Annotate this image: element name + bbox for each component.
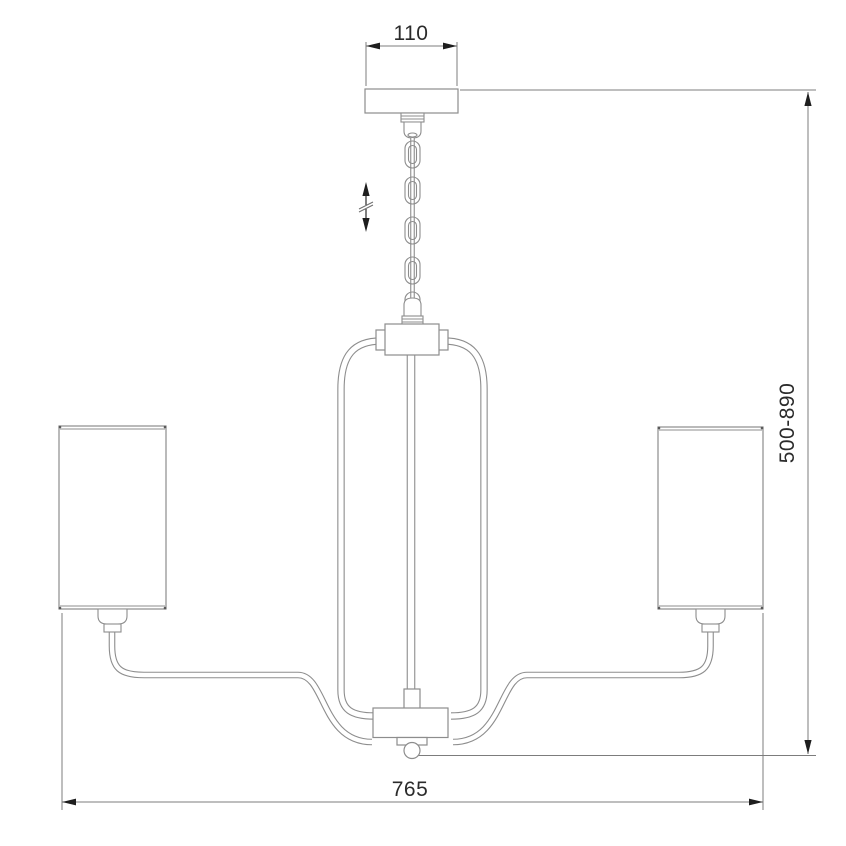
right-arm xyxy=(453,627,711,742)
canopy-width-label: 110 xyxy=(394,22,429,45)
dim-arrow-right-icon xyxy=(749,799,763,806)
dim-arrow-left-icon xyxy=(62,799,76,806)
loop-right-outline xyxy=(444,341,484,716)
chandelier-technical-drawing: 110 500-890 765 xyxy=(0,0,846,846)
right-socket xyxy=(696,609,725,632)
hub-body xyxy=(385,324,439,355)
dim-arrow-right-icon xyxy=(443,43,457,50)
right-socket-bell xyxy=(696,609,725,624)
overall-width-label: 765 xyxy=(392,778,429,801)
ceiling-canopy xyxy=(365,89,458,113)
chain-top-cup xyxy=(404,122,421,138)
adjust-arrow-down-head xyxy=(362,218,369,232)
canopy-plate xyxy=(365,89,458,113)
left-shade xyxy=(59,426,167,610)
dim-arrow-down-icon xyxy=(804,740,811,754)
chain-top-cap xyxy=(401,113,424,122)
loop-right-core xyxy=(444,341,484,716)
left-socket-neck xyxy=(104,624,121,632)
left-socket xyxy=(98,609,127,632)
dim-arrow-up-icon xyxy=(804,92,811,106)
top-hub xyxy=(376,324,448,355)
height-range-label: 500-890 xyxy=(776,383,799,464)
adjust-arrow-up-head xyxy=(362,182,369,196)
loop-left-outline xyxy=(341,341,381,716)
dim-canopy-width: 110 xyxy=(366,22,457,86)
loop-left-core xyxy=(341,341,381,716)
dim-arrow-left-icon xyxy=(366,43,380,50)
finial-ball xyxy=(404,743,420,759)
diagram-canvas: 110 500-890 765 xyxy=(0,0,846,846)
chain-bottom-cup xyxy=(404,298,421,316)
right-shade-body xyxy=(658,427,763,609)
left-shade-body xyxy=(59,426,166,609)
height-adjust-arrow-icon xyxy=(359,182,373,232)
bottom-hub xyxy=(373,689,448,745)
right-shade xyxy=(658,427,764,610)
left-arm xyxy=(112,627,372,742)
right-socket-neck xyxy=(702,624,719,632)
right-arm-outline xyxy=(453,627,711,742)
bottom-stem-block xyxy=(404,689,420,709)
suspension-chain xyxy=(401,113,424,325)
left-arm-outline xyxy=(112,627,372,742)
bottom-plate xyxy=(373,708,448,738)
left-socket-bell xyxy=(98,609,127,624)
